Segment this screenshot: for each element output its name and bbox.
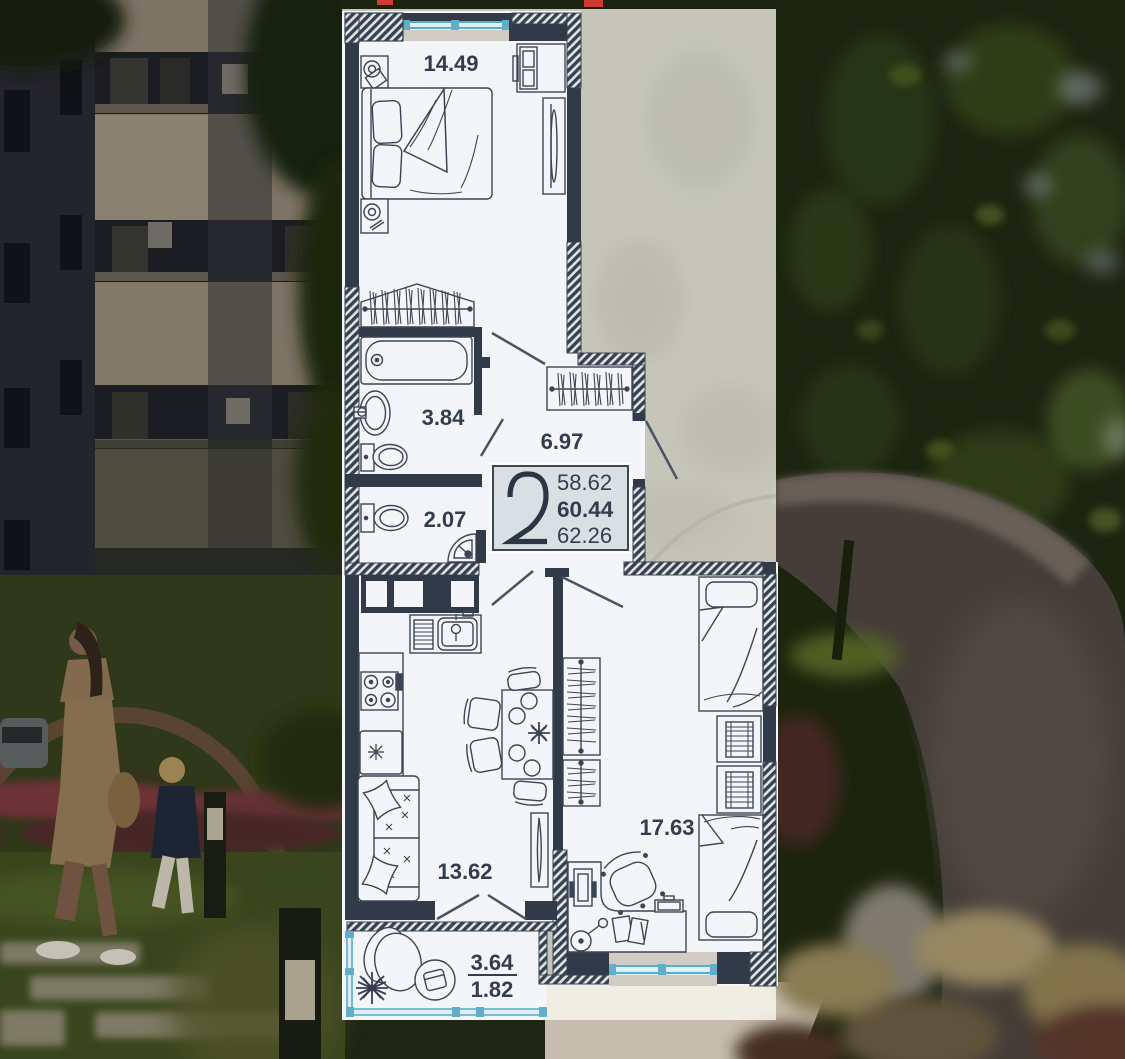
- svg-text:3.64: 3.64: [471, 950, 515, 975]
- svg-text:13.62: 13.62: [437, 859, 492, 884]
- svg-text:2.07: 2.07: [424, 507, 467, 532]
- svg-text:6.97: 6.97: [541, 429, 584, 454]
- svg-text:14.49: 14.49: [423, 51, 478, 76]
- svg-text:17.63: 17.63: [639, 815, 694, 840]
- svg-text:1.82: 1.82: [471, 977, 514, 1002]
- svg-text:60.44: 60.44: [557, 497, 614, 522]
- svg-text:3.84: 3.84: [422, 405, 466, 430]
- svg-text:62.26: 62.26: [557, 523, 612, 548]
- svg-text:58.62: 58.62: [557, 470, 612, 495]
